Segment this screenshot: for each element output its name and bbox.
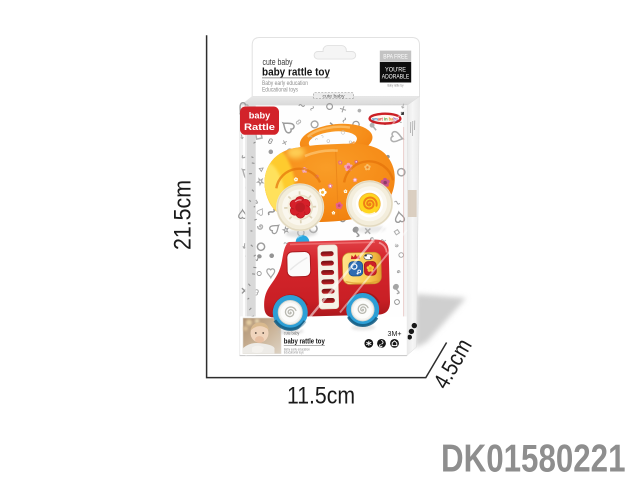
svg-text:baby rattle toy: baby rattle toy — [262, 67, 331, 79]
svg-text:Baby rattle toy: Baby rattle toy — [388, 84, 404, 88]
svg-text:baby rattle toy: baby rattle toy — [284, 337, 325, 346]
svg-text:Educational toys: Educational toys — [284, 351, 304, 355]
svg-text:DK01580221: DK01580221 — [441, 438, 626, 480]
svg-text:YOU'RE: YOU'RE — [385, 66, 406, 73]
svg-text:3M+: 3M+ — [388, 329, 402, 338]
svg-text:Educational toys: Educational toys — [262, 86, 298, 93]
svg-text:Rattle: Rattle — [244, 122, 275, 133]
svg-text:BPA FREE: BPA FREE — [383, 53, 408, 60]
svg-text:cute baby: cute baby — [323, 93, 346, 98]
svg-text:baby: baby — [249, 111, 271, 122]
svg-text:11.5cm: 11.5cm — [287, 383, 355, 410]
svg-text:cute baby: cute baby — [263, 57, 293, 67]
svg-text:21.5cm: 21.5cm — [170, 180, 197, 250]
svg-text:ADORABLE: ADORABLE — [382, 73, 410, 80]
